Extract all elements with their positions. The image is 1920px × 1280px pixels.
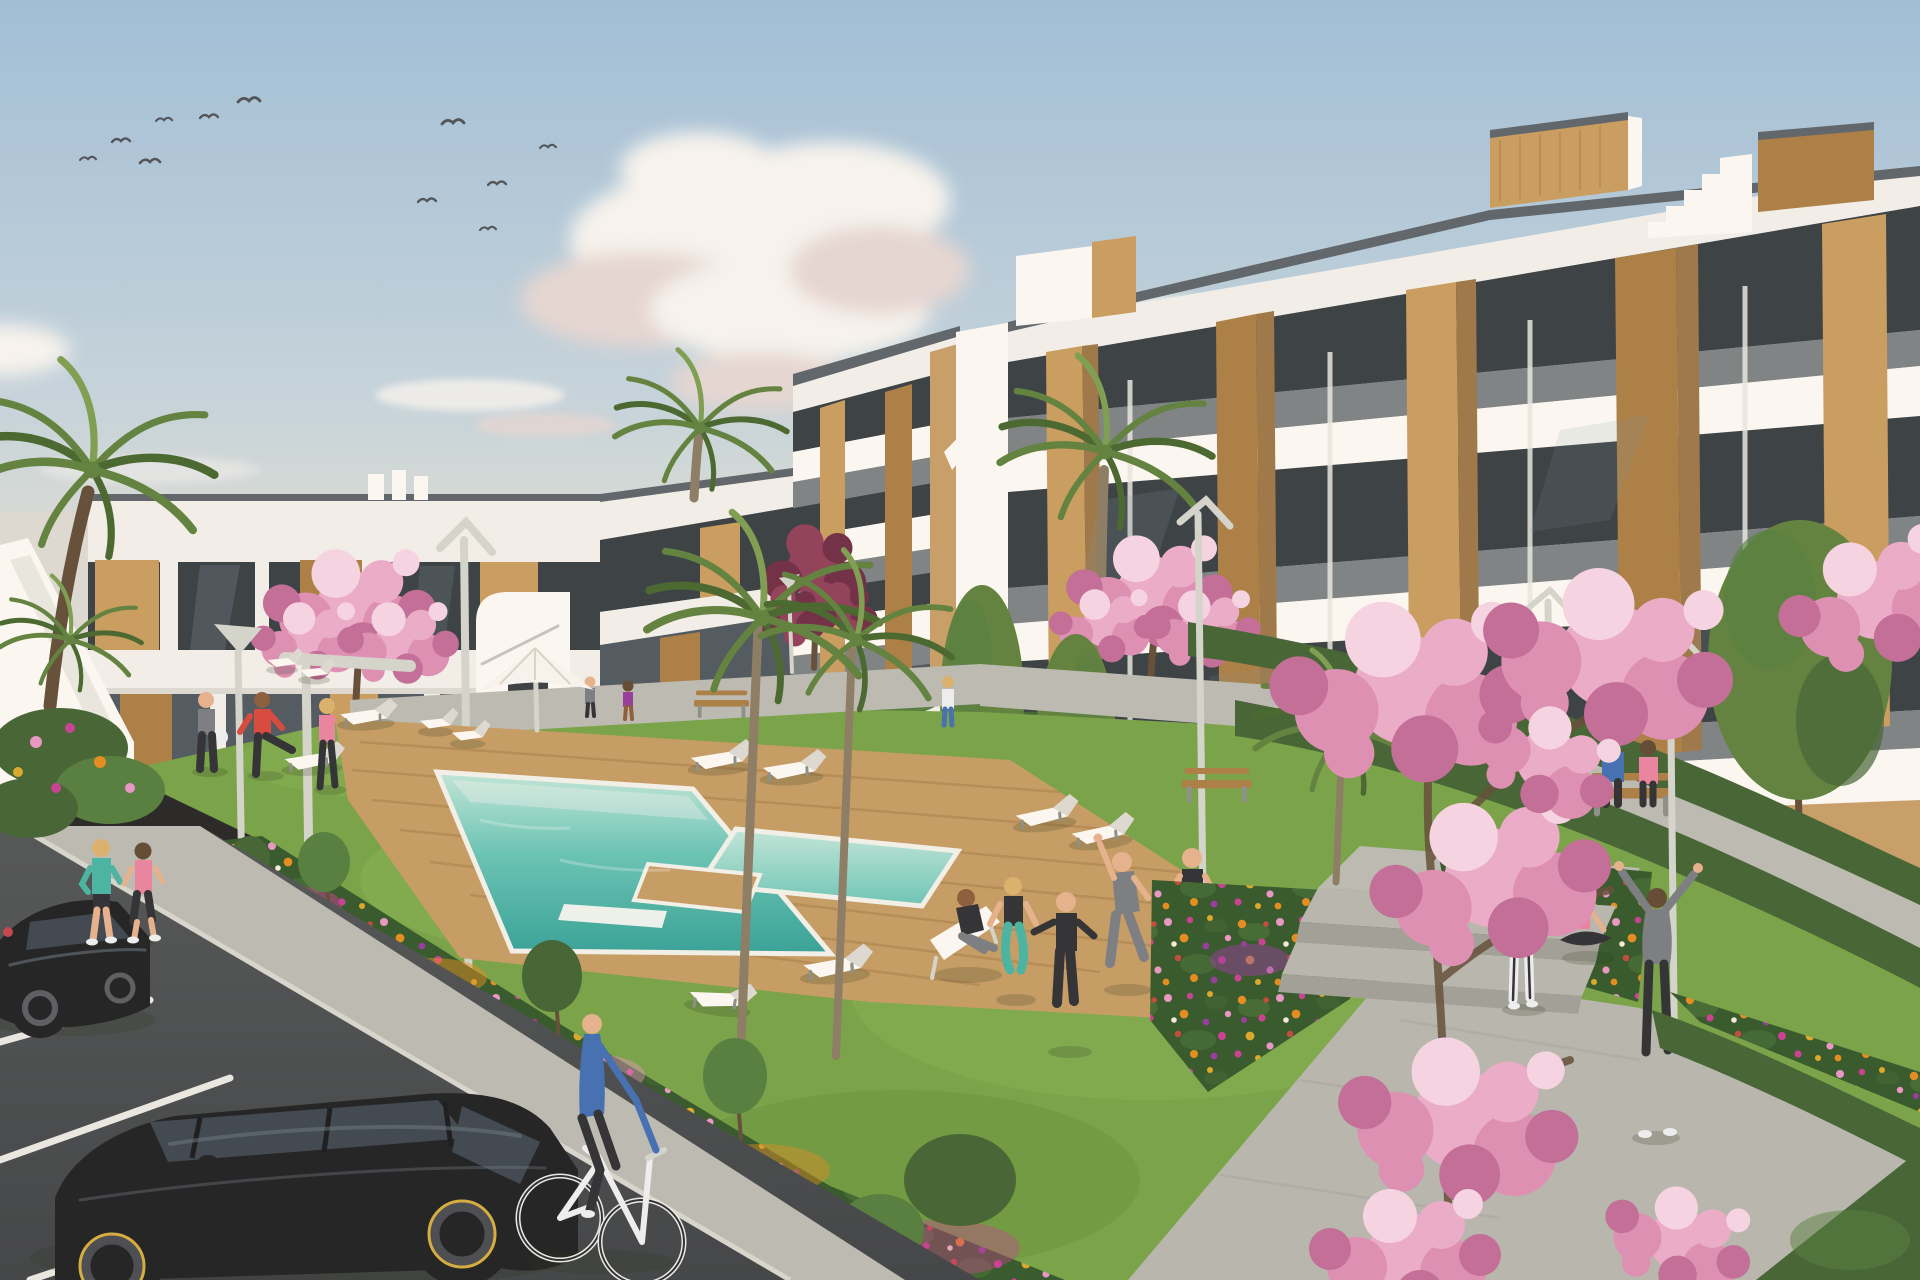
light-wash xyxy=(0,0,1920,1280)
render-canvas xyxy=(0,0,1920,1280)
architectural-render-scene xyxy=(0,0,1920,1280)
